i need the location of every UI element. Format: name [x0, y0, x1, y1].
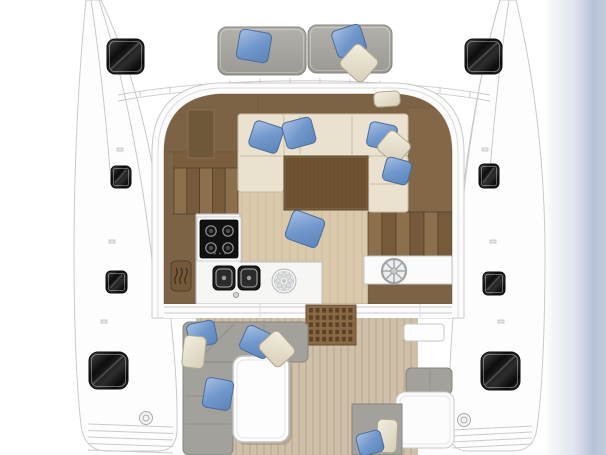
saloon-table: [284, 156, 368, 210]
grating-hole: [329, 322, 333, 327]
stair-step: [187, 168, 200, 214]
grating-hole: [342, 315, 346, 320]
grating-hole: [348, 330, 352, 335]
pillow-cream: [374, 91, 401, 108]
pillow-cream: [181, 335, 206, 369]
grating-hole: [322, 315, 326, 320]
nav-cabinet: [188, 110, 214, 158]
grating-hole: [309, 330, 313, 335]
stair-step: [174, 168, 187, 214]
helm-panel: [364, 256, 452, 284]
stair-step: [396, 212, 410, 256]
stair-step: [410, 212, 424, 256]
pillow-blue: [236, 28, 273, 63]
stair-step: [368, 212, 382, 256]
burner-center: [226, 229, 230, 233]
hob-knob: [219, 253, 221, 255]
helm-console: [364, 256, 452, 284]
deck-fitting-icon: [140, 412, 153, 425]
deck-hatch-icon: [107, 39, 144, 74]
grating-hole: [322, 322, 326, 327]
cockpit-table: [233, 356, 289, 442]
staircase-to-hull: [174, 168, 238, 214]
grating-hole: [329, 337, 333, 342]
grating-hole: [348, 322, 352, 327]
grating-hole: [335, 330, 339, 335]
grating-hole: [316, 308, 320, 313]
sink-icon: [213, 266, 235, 290]
deck-fitting-icon: [458, 414, 471, 427]
grating-hole: [309, 337, 313, 342]
stair-step: [212, 168, 225, 214]
table-grain: [286, 156, 366, 210]
deck-hatch-icon: [481, 352, 520, 390]
grating-hole: [329, 308, 333, 313]
grating-hole: [342, 308, 346, 313]
deck-hatch-icon: [89, 352, 128, 389]
grating-hole: [322, 330, 326, 335]
folding-seat-panel: [404, 324, 444, 341]
catamaran-floorplan: [0, 0, 606, 455]
grating-hole: [342, 337, 346, 342]
starboard-cabinet-block: [408, 108, 452, 212]
pillow-blue: [202, 377, 235, 411]
grating-hole: [309, 315, 313, 320]
deck-hatch-icon: [111, 166, 131, 188]
deck-hatch-icon: [465, 39, 502, 74]
grating-hole: [309, 322, 313, 327]
deck-hatch-icon: [106, 271, 127, 293]
grating-hole: [316, 315, 320, 320]
grating-hole: [335, 337, 339, 342]
stove-burner-icon: [200, 220, 238, 258]
stair-step: [225, 168, 238, 214]
grating-hole: [322, 308, 326, 313]
hob-knob: [224, 253, 226, 255]
staircase-to-hull: [368, 212, 452, 256]
sink-icon: [238, 266, 260, 290]
grating-hole: [329, 315, 333, 320]
grating-hole: [335, 315, 339, 320]
grating-hole: [309, 308, 313, 313]
water-edge-shading: [544, 0, 606, 455]
hob-knob: [214, 253, 216, 255]
deck-grating: [306, 305, 356, 345]
grating-hole: [348, 308, 352, 313]
burner-center: [209, 246, 213, 250]
grating-hole: [316, 322, 320, 327]
vent-fan-icon: [272, 269, 296, 293]
helm-seat-module: [396, 392, 454, 448]
grating-hole: [322, 337, 326, 342]
stair-step: [424, 212, 438, 256]
grating-hole: [335, 322, 339, 327]
burner-center: [226, 246, 230, 250]
grating-hole: [316, 330, 320, 335]
aft-gray-bench: [406, 368, 452, 394]
grating-hole: [348, 337, 352, 342]
burner-center: [209, 229, 213, 233]
aft-starboard-step: [368, 284, 452, 304]
grating-hole: [348, 315, 352, 320]
grating-hole: [329, 330, 333, 335]
fan-petal: [286, 274, 291, 279]
grating-hole: [316, 337, 320, 342]
grating-hole: [342, 330, 346, 335]
ships-wheel-icon: [382, 259, 406, 283]
faucet: [233, 292, 238, 297]
grating-hole: [335, 308, 339, 313]
stair-step: [382, 212, 396, 256]
deck-hatch-icon: [483, 272, 505, 295]
floorplan-image: [0, 0, 606, 455]
grating-hole: [342, 322, 346, 327]
stair-step: [200, 168, 213, 214]
stair-step: [438, 212, 452, 256]
deck-hatch-icon: [479, 164, 499, 188]
oven-steam-icon: [171, 261, 191, 291]
